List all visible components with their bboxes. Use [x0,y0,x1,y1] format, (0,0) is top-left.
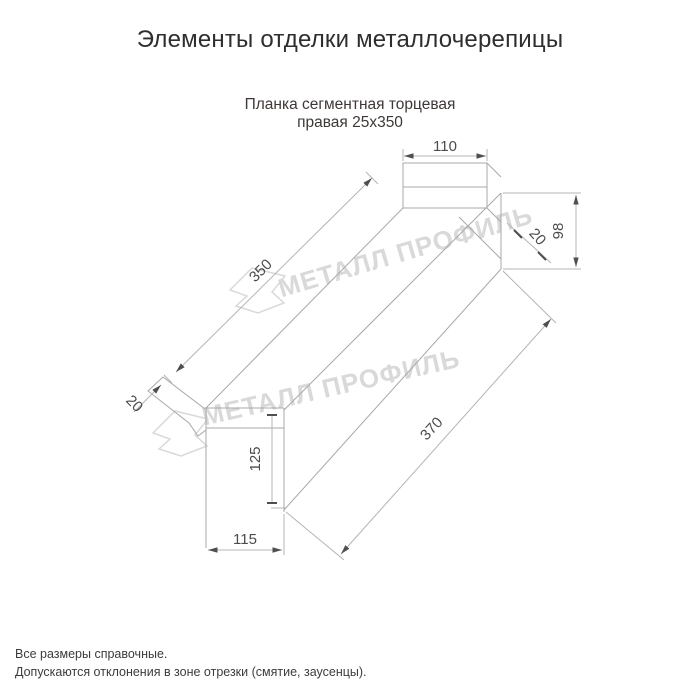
dim-label-98: 98 [550,223,567,240]
watermark-text: МЕТАЛЛ ПРОФИЛЬ [275,200,536,304]
footer-note-2: Допускаются отклонения в зоне отрезки (с… [15,664,367,682]
dim-left-height: 125 [247,415,286,508]
watermark-top: МЕТАЛЛ ПРОФИЛЬ [230,200,536,313]
technical-drawing: МЕТАЛЛ ПРОФИЛЬ МЕТАЛЛ ПРОФИЛЬ 1 [0,0,700,700]
metal-profile-logo-icon [153,411,208,456]
watermark-bottom: МЕТАЛЛ ПРОФИЛЬ [153,343,463,456]
dim-left-hem: 20 [122,375,172,416]
dim-flange-width: 110 [403,138,487,161]
dim-label-115: 115 [233,531,257,548]
dim-left-width: 115 [208,514,284,555]
dim-label-370: 370 [417,414,447,444]
dim-label-125: 125 [247,446,264,471]
footer-notes: Все размеры справочные. Допускаются откл… [15,646,367,681]
footer-note-1: Все размеры справочные. [15,646,367,664]
dim-label-110: 110 [433,138,457,155]
watermark-text: МЕТАЛЛ ПРОФИЛЬ [199,343,463,432]
dim-label-20-left: 20 [122,392,146,416]
dim-label-350: 350 [246,256,276,286]
dim-bottom-length: 370 [286,271,556,560]
